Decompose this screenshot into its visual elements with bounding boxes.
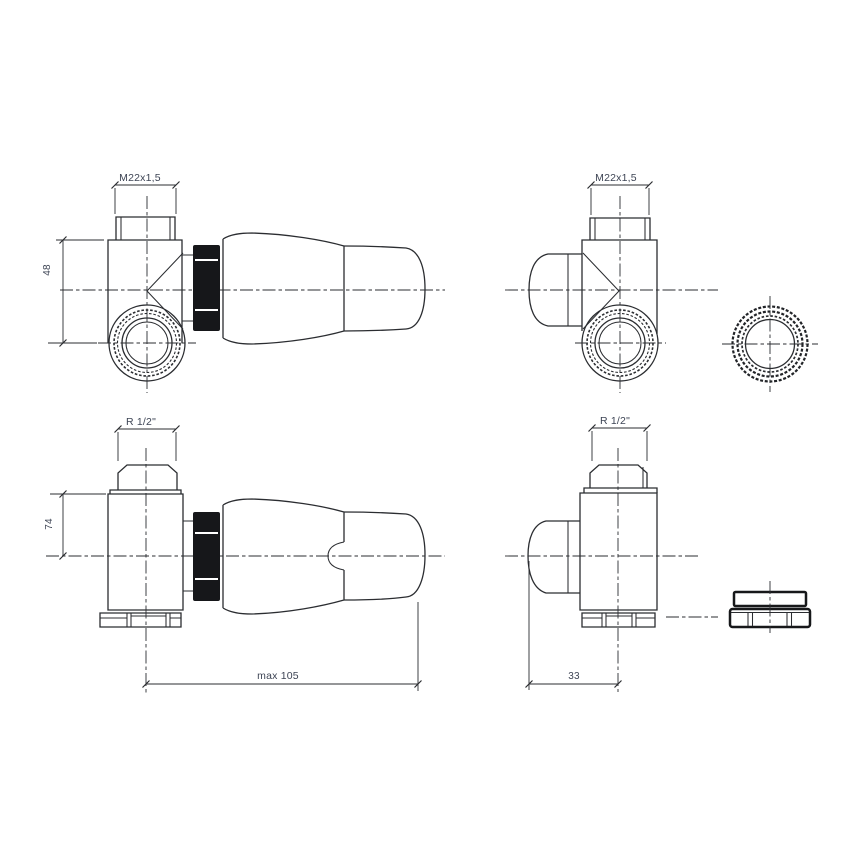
neck-connector	[182, 255, 193, 321]
dim-lines-r12	[592, 428, 647, 461]
cone-seat-lines	[583, 253, 619, 329]
thread-label-m22: M22x1,5	[595, 172, 637, 184]
thermostatic-head	[223, 499, 344, 614]
union-nut-side-view	[666, 581, 810, 633]
valve-body-outline	[108, 240, 182, 343]
length-dim-label: max 105	[257, 670, 299, 682]
hex-nut-outline	[118, 465, 177, 490]
thread-stub-outline	[116, 217, 175, 240]
view-bottom-left-valve-head-tail: R 1/2" 74 max 105	[44, 416, 445, 695]
hex-nut-outline	[590, 465, 647, 488]
union-nut-front-view	[722, 296, 818, 392]
face-to-axis-dim-label: 33	[568, 671, 580, 682]
port-crosshair	[98, 196, 196, 393]
union-band-slots	[100, 613, 181, 627]
valve-body-outline	[108, 494, 183, 610]
union-band-outline	[100, 613, 181, 627]
flange-outline	[584, 488, 657, 493]
gland-ring	[193, 512, 220, 601]
thread-stub-lines	[121, 217, 170, 240]
valve-body-outline	[580, 493, 657, 610]
valve-body-outline	[582, 240, 657, 334]
technical-drawing-sheet: M22x1,5 48 M22x1,5	[0, 0, 868, 868]
thermostatic-head	[223, 233, 344, 344]
height-dim-label: 48	[42, 264, 53, 276]
view-top-right-valve-side: M22x1,5	[505, 172, 718, 393]
tailpiece-stub	[528, 521, 580, 593]
union-band-slots	[582, 613, 655, 627]
head-cap	[344, 246, 425, 331]
dim-lines-74	[50, 494, 106, 556]
valve-drawing-svg: M22x1,5 48 M22x1,5	[0, 0, 868, 868]
axis-dim-label: 74	[44, 518, 55, 530]
view-bottom-right-valve-tail: R 1/2" 33	[505, 415, 700, 692]
gland-ring	[193, 245, 220, 331]
thread-label-r12: R 1/2"	[600, 415, 630, 427]
dim-lines-48	[48, 240, 104, 343]
cone-seat-lines	[147, 253, 183, 329]
union-band-outline	[582, 613, 655, 627]
dim-lines-r12	[118, 429, 176, 461]
thread-label-r12: R 1/2"	[126, 416, 156, 428]
thread-label-m22: M22x1,5	[119, 172, 161, 184]
dim-lines-m22	[115, 185, 176, 214]
view-top-left-valve-head-side: M22x1,5 48	[42, 172, 445, 393]
